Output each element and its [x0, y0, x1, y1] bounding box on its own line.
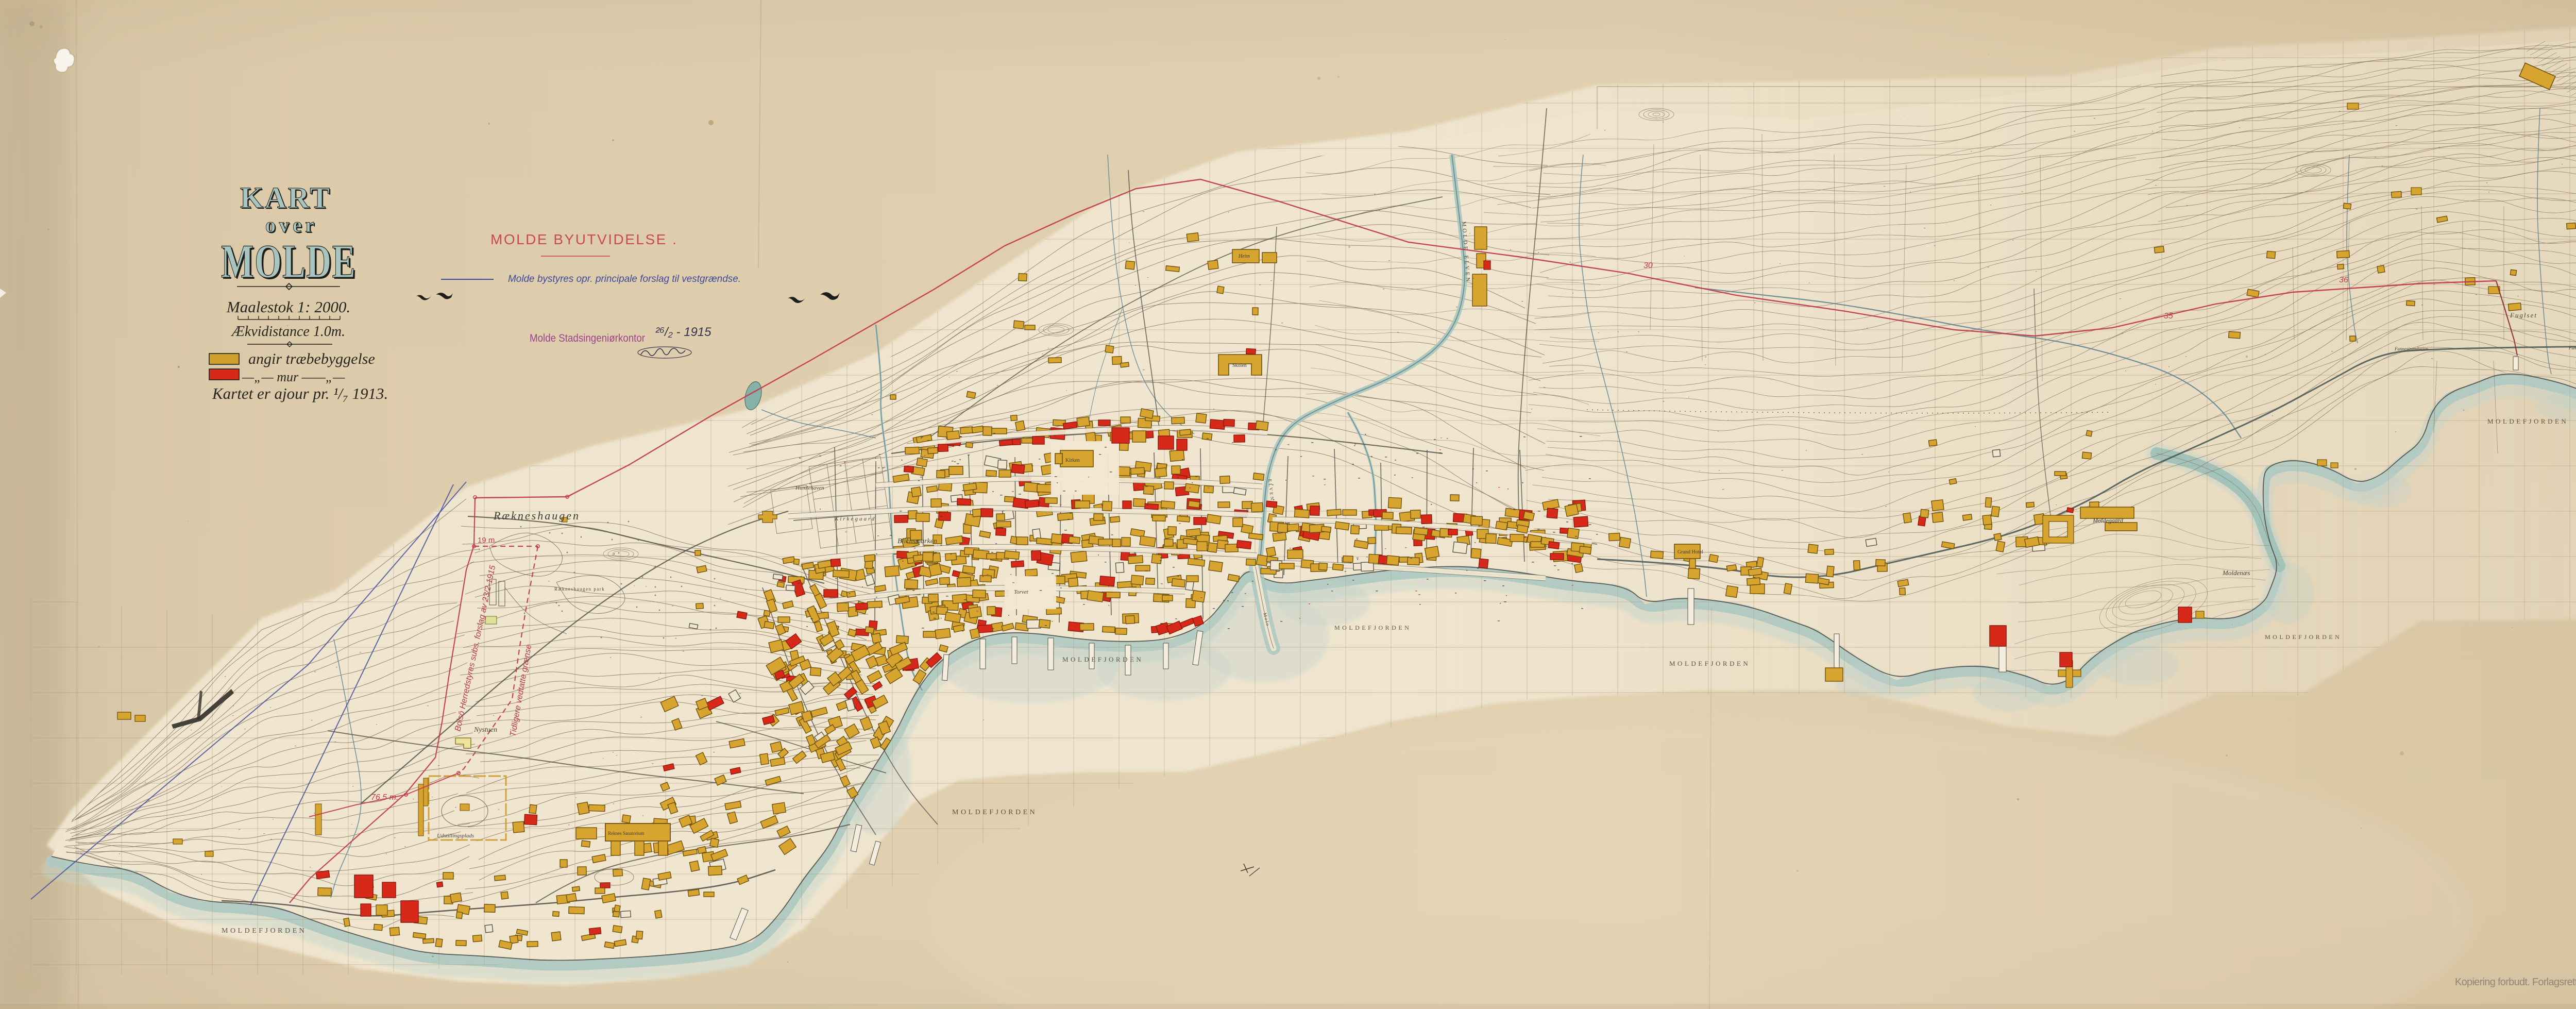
svg-text:angir træbebyggelse: angir træbebyggelse: [248, 350, 375, 367]
svg-text:30: 30: [1643, 261, 1653, 270]
svg-text:Humlehaven: Humlehaven: [795, 485, 824, 491]
svg-text:Blichsmarken: Blichsmarken: [897, 537, 937, 545]
svg-text:Molde Stadsingeniørkontor: Molde Stadsingeniørkontor: [530, 332, 645, 344]
svg-text:Fannestrandveien: Fannestrandveien: [2568, 345, 2576, 350]
svg-text:Torvet: Torvet: [1014, 589, 1029, 595]
svg-text:Kartet er ajour pr. ¹/₇ 1913.: Kartet er ajour pr. ¹/₇ 1913.: [212, 384, 388, 402]
svg-text:Moldegaard: Moldegaard: [2092, 517, 2124, 524]
svg-text:MOLDE: MOLDE: [221, 235, 356, 288]
svg-text:19 m.: 19 m.: [478, 536, 497, 545]
svg-text:Heim: Heim: [1238, 254, 1250, 259]
svg-text:MOLDEFJORDEN: MOLDEFJORDEN: [2265, 633, 2342, 641]
svg-text:Maalestok 1: 2000.: Maalestok 1: 2000.: [226, 298, 350, 316]
svg-text:Reknes Sanatorium: Reknes Sanatorium: [608, 831, 644, 836]
svg-text:²⁶/₂ - 1915: ²⁶/₂ - 1915: [655, 325, 711, 339]
svg-text:KART: KART: [240, 181, 337, 214]
svg-text:MOLDEFJORDEN: MOLDEFJORDEN: [2487, 417, 2568, 425]
svg-text:Grand Hotel: Grand Hotel: [1677, 549, 1703, 555]
svg-text:36: 36: [2339, 276, 2348, 284]
svg-text:Ækvidistance 1.0m.: Ækvidistance 1.0m.: [231, 324, 345, 340]
svg-text:MOLDEFJORDEN: MOLDEFJORDEN: [1062, 655, 1143, 663]
svg-text:35: 35: [2164, 312, 2173, 321]
svg-text:—„— mur ——„—: —„— mur ——„—: [242, 369, 345, 384]
svg-text:Kopiering forbudt. Forlagsrett: Kopiering forbudt. Forlagsretten tilhöre…: [2455, 977, 2576, 988]
svg-text:Fannestrandveien: Fannestrandveien: [2394, 346, 2428, 351]
svg-text:over: over: [265, 213, 317, 237]
svg-text:Kirken: Kirken: [1065, 458, 1080, 463]
svg-text:Kirkegaard: Kirkegaard: [834, 516, 876, 522]
svg-text:76,5 m.: 76,5 m.: [371, 793, 398, 802]
svg-text:MOLDE BYUTVIDELSE .: MOLDE BYUTVIDELSE .: [490, 231, 677, 247]
svg-text:Moldenæs: Moldenæs: [2222, 569, 2250, 577]
svg-text:MOLDEFJORDEN: MOLDEFJORDEN: [1334, 624, 1411, 631]
svg-text:Fuglset: Fuglset: [2510, 311, 2537, 319]
svg-text:MOLDEFJORDEN: MOLDEFJORDEN: [222, 927, 307, 935]
svg-text:Skolen: Skolen: [1232, 363, 1247, 368]
svg-text:MOLDEFJORDEN: MOLDEFJORDEN: [952, 809, 1037, 816]
svg-text:Rækneshaugen: Rækneshaugen: [493, 509, 580, 522]
svg-text:Molde bystyres opr. principale: Molde bystyres opr. principale forslag t…: [508, 274, 741, 284]
svg-text:Rækneshaugen park: Rækneshaugen park: [554, 586, 605, 592]
svg-text:Nystuen: Nystuen: [473, 726, 497, 734]
svg-text:MOLDEFJORDEN: MOLDEFJORDEN: [1669, 660, 1750, 667]
svg-text:Udstillingsplads: Udstillingsplads: [437, 833, 474, 839]
